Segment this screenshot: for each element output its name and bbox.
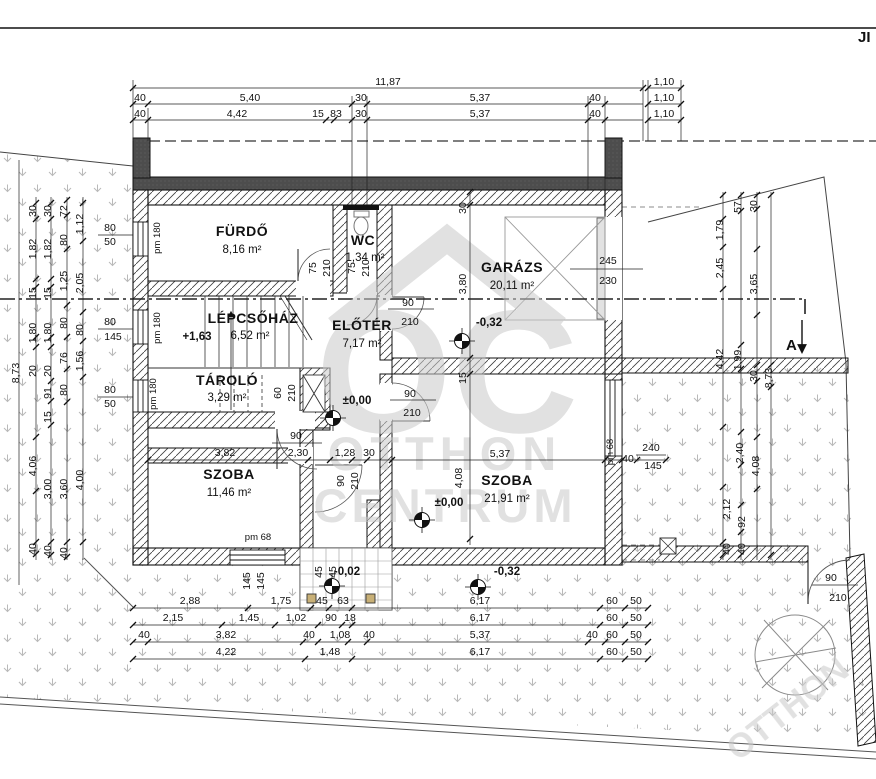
dim-label: 5,40 bbox=[240, 92, 261, 104]
dim-label: 80 bbox=[58, 317, 70, 329]
dim-label: 40 bbox=[721, 543, 733, 555]
dim-label: 4,22 bbox=[216, 646, 237, 658]
door-size-label: 210 bbox=[360, 259, 372, 277]
room-name: ELŐTÉR bbox=[332, 316, 392, 333]
dim-label: 20 bbox=[42, 365, 54, 377]
dim-label: 2,40 bbox=[734, 443, 746, 464]
dim-label: 60 bbox=[606, 629, 618, 641]
dim-label: 4,08 bbox=[453, 468, 465, 489]
room-name: FÜRDŐ bbox=[216, 222, 268, 239]
door-size-label: 210 bbox=[401, 316, 419, 328]
dim-label: 92 bbox=[736, 516, 748, 528]
dim-label: 1,80 bbox=[42, 323, 54, 344]
dim-label: 40 bbox=[363, 629, 375, 641]
dim-label: 1,99 bbox=[732, 350, 744, 371]
top-dims: 11,87 1,10 40 5,40 30 5,37 40 1,10 40 4,… bbox=[134, 76, 674, 120]
dim-label: 1,45 bbox=[239, 612, 260, 624]
garage-door-size: 230 bbox=[599, 275, 617, 287]
door-size-label: 90 bbox=[402, 297, 414, 309]
room-area: 11,46 m² bbox=[207, 487, 252, 499]
gate-size-label: 210 bbox=[829, 592, 847, 604]
window-size-label: 50 bbox=[104, 236, 116, 248]
dim-label: 1,75 bbox=[271, 595, 292, 607]
dim-label: 40 bbox=[586, 629, 598, 641]
dim-label: 30 bbox=[42, 205, 54, 217]
dim-label: 30 bbox=[355, 108, 367, 120]
dim-label: 80 bbox=[74, 324, 86, 336]
dim-label: 40 bbox=[138, 629, 150, 641]
dim-label: 30 bbox=[748, 200, 760, 212]
dim-label: 11,87 bbox=[375, 76, 401, 88]
dim-label: 1,48 bbox=[320, 646, 341, 658]
dim-label: 40 bbox=[589, 92, 601, 104]
dim-label: 40 bbox=[42, 545, 54, 557]
dim-label: 15 bbox=[42, 411, 54, 423]
dim-label: 80 bbox=[58, 234, 70, 246]
dim-label: 50 bbox=[630, 595, 642, 607]
door-size-label: 210 bbox=[286, 384, 298, 402]
dim-label: 145 bbox=[255, 572, 267, 590]
dim-label: 50 bbox=[630, 612, 642, 624]
room-area: 21,91 m² bbox=[484, 493, 530, 505]
dim-label: 83 bbox=[330, 108, 342, 120]
dim-label: 5,37 bbox=[490, 448, 511, 460]
dim-label: 3,82 bbox=[215, 447, 236, 459]
room-name: WC bbox=[351, 232, 375, 248]
room-name: GARÁZS bbox=[481, 259, 543, 275]
room-area: 8,16 m² bbox=[223, 244, 262, 256]
room-area: 20,11 m² bbox=[490, 280, 535, 292]
floor-plan-drawing: OC OTTHON CENTRUM OTTHON JI A FÜRDŐ 8,16… bbox=[0, 0, 876, 779]
dim-label: 57 bbox=[732, 201, 744, 213]
dim-label: 145 bbox=[241, 572, 253, 590]
dim-label: 90 bbox=[325, 612, 337, 624]
window-size-label: 145 bbox=[644, 460, 662, 472]
window-size-label: 145 bbox=[104, 331, 122, 343]
door-size-label: 90 bbox=[290, 430, 302, 442]
dim-label: 15 bbox=[42, 287, 54, 299]
dim-label: 4,06 bbox=[27, 456, 39, 477]
dim-label: 30 bbox=[457, 202, 469, 214]
dim-label: 5,37 bbox=[470, 108, 491, 120]
dim-label: 6,17 bbox=[470, 595, 491, 607]
dim-label: 4,42 bbox=[227, 108, 248, 120]
level-garage: -0,32 bbox=[476, 317, 502, 329]
window-size-label: 50 bbox=[104, 398, 116, 410]
dim-label: 2,12 bbox=[721, 499, 733, 520]
dim-label: 4,42 bbox=[714, 349, 726, 370]
wc-lintel bbox=[343, 205, 379, 210]
dim-label: 8,73 bbox=[10, 363, 22, 384]
section-marker-label: A bbox=[786, 337, 797, 354]
window-size-label: 80 bbox=[104, 222, 116, 234]
porch-post-left bbox=[307, 594, 316, 603]
room-name: LÉPCSŐHÁZ bbox=[208, 309, 299, 326]
dim-label: 40 bbox=[303, 629, 315, 641]
door-size-label: 210 bbox=[321, 259, 333, 277]
parapet-label: pm 180 bbox=[148, 378, 159, 410]
dim-label: 2,30 bbox=[288, 447, 309, 459]
dim-label: 1,82 bbox=[27, 239, 39, 260]
parapet-label: pm 180 bbox=[152, 312, 163, 344]
corner-note: JI bbox=[858, 29, 871, 46]
dim-label: 45 bbox=[316, 595, 328, 607]
dim-label: 40 bbox=[589, 108, 601, 120]
dim-label: 1,10 bbox=[654, 92, 675, 104]
door-size-label: 60 bbox=[272, 387, 284, 399]
dim-label: 45 bbox=[313, 566, 325, 578]
dim-label: 5,37 bbox=[470, 629, 491, 641]
room-area: 7,17 m² bbox=[343, 338, 382, 350]
dim-label: 1,25 bbox=[58, 271, 70, 292]
dim-label: 1,02 bbox=[286, 612, 307, 624]
dim-label: 1,10 bbox=[654, 76, 675, 88]
dim-label: 40 bbox=[134, 108, 146, 120]
window-stair bbox=[133, 310, 148, 344]
dim-label: 30 bbox=[363, 447, 375, 459]
dim-label: 3,60 bbox=[58, 479, 70, 500]
dim-label: 30 bbox=[748, 370, 760, 382]
window-bath-1 bbox=[133, 222, 148, 256]
dim-label: 80 bbox=[58, 384, 70, 396]
yard-post-detail bbox=[660, 538, 676, 554]
dim-label: 1,56 bbox=[74, 351, 86, 372]
dim-label: 40 bbox=[27, 543, 39, 555]
dim-label: 50 bbox=[630, 646, 642, 658]
dim-label: 60 bbox=[606, 646, 618, 658]
dim-label: 18 bbox=[344, 612, 356, 624]
dim-label: 3,80 bbox=[457, 274, 469, 295]
dim-label: 60 bbox=[606, 595, 618, 607]
room-name: SZOBA bbox=[481, 472, 533, 488]
level-yard: -0,32 bbox=[494, 566, 520, 578]
dim-label: 6,17 bbox=[470, 612, 491, 624]
level-room2: ±0,00 bbox=[435, 497, 464, 509]
parapet-label: pm 68 bbox=[605, 439, 616, 465]
level-entry: ±0,00 bbox=[343, 395, 372, 407]
dim-label: 3,82 bbox=[216, 629, 237, 641]
room-name: TÁROLÓ bbox=[196, 371, 258, 388]
dim-label: 15 bbox=[457, 372, 469, 384]
dim-label: 91 bbox=[42, 387, 54, 399]
floor-plan-canvas: OC OTTHON CENTRUM OTTHON JI A FÜRDŐ 8,16… bbox=[0, 0, 876, 779]
window-storage bbox=[133, 380, 148, 412]
dim-label: 2,05 bbox=[74, 273, 86, 294]
dim-label: 50 bbox=[630, 629, 642, 641]
dim-label: 1,28 bbox=[335, 447, 356, 459]
dim-label: 15 bbox=[312, 108, 324, 120]
window-size-label: 80 bbox=[104, 316, 116, 328]
room-name: SZOBA bbox=[203, 466, 255, 482]
dim-label: 72 bbox=[58, 205, 70, 217]
dim-label: 40 bbox=[622, 453, 634, 465]
dim-label: 1,10 bbox=[654, 108, 675, 120]
room-area: 6,52 m² bbox=[231, 330, 270, 342]
room-area: 3,29 m² bbox=[208, 392, 247, 404]
dim-label: 30 bbox=[355, 92, 367, 104]
door-size-label: 210 bbox=[349, 472, 361, 490]
dim-label: 76 bbox=[58, 352, 70, 364]
parapet-label: pm 180 bbox=[152, 222, 163, 254]
door-size-label: 75 bbox=[307, 262, 319, 274]
dim-label: 1,80 bbox=[27, 323, 39, 344]
dim-label: 4,00 bbox=[74, 470, 86, 491]
dim-label: 6,17 bbox=[470, 646, 491, 658]
dim-label: 1,82 bbox=[42, 239, 54, 260]
dim-label: 40 bbox=[58, 547, 70, 559]
dim-label: 20 bbox=[27, 365, 39, 377]
parapet-label: pm 68 bbox=[245, 532, 271, 543]
dim-label: 2,88 bbox=[180, 595, 201, 607]
level-stair: +1,63 bbox=[182, 331, 211, 343]
door-size-label: 90 bbox=[335, 475, 347, 487]
dim-label: 3,00 bbox=[42, 479, 54, 500]
window-room1 bbox=[230, 550, 285, 565]
dim-label: 2,45 bbox=[714, 258, 726, 279]
dim-label: 5,37 bbox=[470, 92, 491, 104]
gate-size-label: 90 bbox=[825, 572, 837, 584]
dim-label: 63 bbox=[337, 595, 349, 607]
dim-label: 30 bbox=[27, 205, 39, 217]
dim-label: 1,79 bbox=[714, 220, 726, 241]
door-size-label: 90 bbox=[404, 388, 416, 400]
garage-door-size: 245 bbox=[599, 255, 617, 267]
window-size-label: 80 bbox=[104, 384, 116, 396]
window-size-label: 240 bbox=[642, 442, 660, 454]
dim-label: 40 bbox=[736, 543, 748, 555]
door-size-label: 210 bbox=[403, 407, 421, 419]
dim-label: 1,12 bbox=[74, 214, 86, 235]
dim-label: 4,08 bbox=[750, 456, 762, 477]
dim-label: 3,65 bbox=[748, 274, 760, 295]
north-dark-wall bbox=[133, 138, 622, 190]
dim-label: 8,73 bbox=[763, 368, 775, 389]
dim-label: 2,15 bbox=[163, 612, 184, 624]
dim-label: 60 bbox=[606, 612, 618, 624]
porch-post-right bbox=[366, 594, 375, 603]
dim-label: 45 bbox=[327, 566, 339, 578]
dim-label: 40 bbox=[134, 92, 146, 104]
dim-label: 1,08 bbox=[330, 629, 351, 641]
dim-label: 15 bbox=[27, 287, 39, 299]
door-size-label: 75 bbox=[346, 262, 358, 274]
